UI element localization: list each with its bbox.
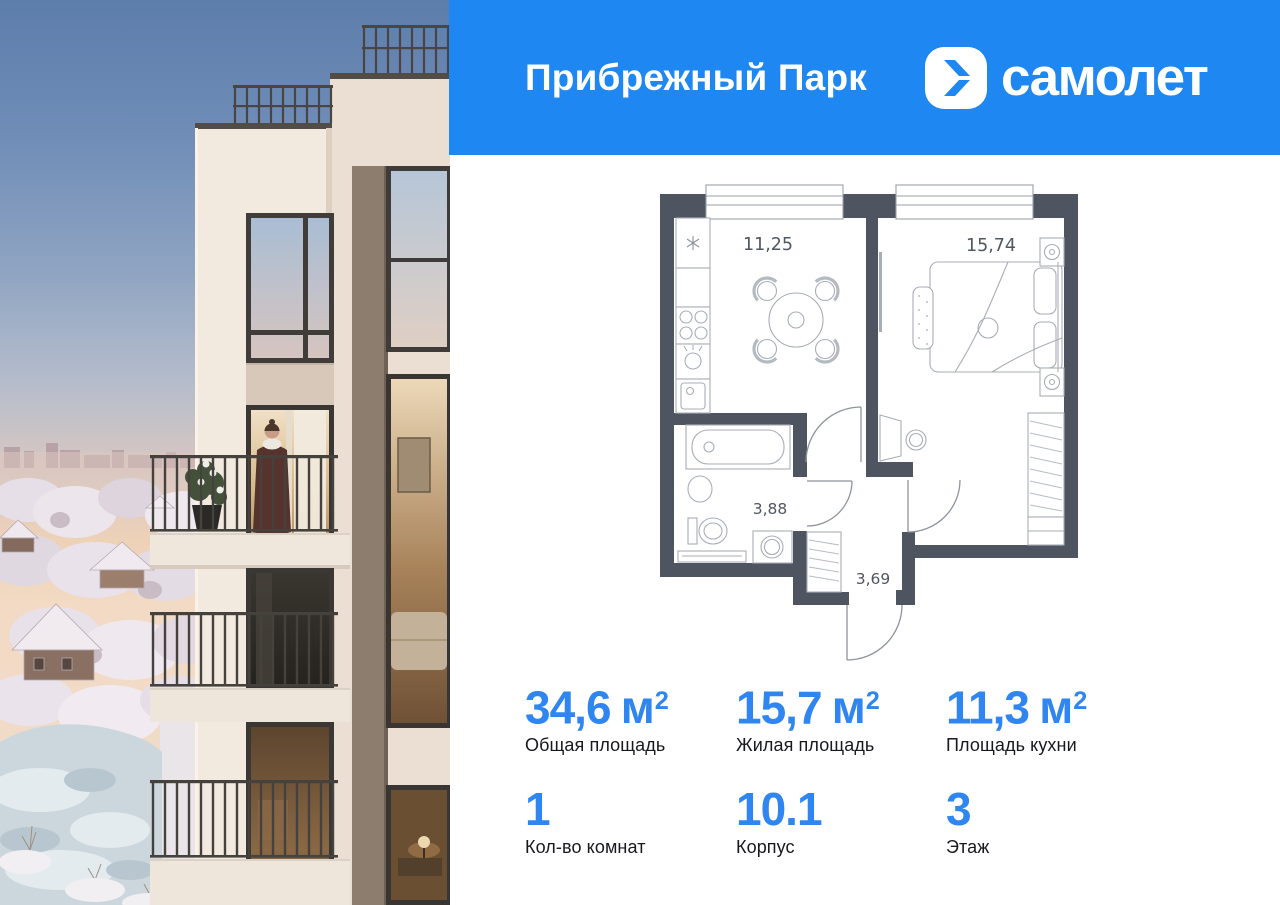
stat-living-area-label: Жилая площадь — [736, 735, 941, 756]
samolet-logo-icon — [925, 47, 987, 109]
stat-rooms-count-value: 1 — [525, 788, 730, 830]
stat-floor-label: Этаж — [946, 837, 1151, 858]
stat-total-area-value: 34,6 м2 — [525, 678, 730, 728]
white-scarf — [263, 439, 282, 450]
project-title: Прибрежный Парк — [525, 0, 867, 155]
chair — [758, 282, 777, 301]
building-facade — [150, 25, 450, 905]
bathroom-area-label: 3,88 — [753, 500, 788, 518]
stat-floor-value: 3 — [946, 788, 1151, 830]
window-desk-interior — [386, 785, 450, 905]
apartment-stats: 34,6 м2 Общая площадь 15,7 м2 Жилая площ… — [525, 670, 1145, 900]
stat-building-value: 10.1 — [736, 788, 941, 830]
stat-kitchen-area: 11,3 м2 Площадь кухни — [946, 678, 1151, 756]
dining-table — [769, 293, 823, 347]
nightstand — [1040, 238, 1064, 266]
stat-total-area-label: Общая площадь — [525, 735, 730, 756]
header-banner: Прибрежный Парк самолет — [449, 0, 1280, 155]
floor-plan-svg: 11,25 15,74 3,88 3,69 — [655, 183, 1087, 675]
roof-railing-far — [362, 25, 450, 28]
nightstand — [1040, 368, 1064, 396]
chair — [758, 340, 777, 359]
facade-panel — [352, 166, 388, 905]
window-living-room-interior — [386, 374, 450, 728]
roof-railing-near — [233, 85, 333, 88]
toilet — [688, 518, 697, 544]
stat-building: 10.1 Корпус — [736, 788, 941, 858]
bench — [913, 287, 933, 349]
samolet-logo: самолет — [925, 0, 1207, 155]
hallway-area-label: 3,69 — [856, 570, 891, 588]
brand-name: самолет — [1001, 51, 1207, 104]
stat-kitchen-area-value: 11,3 м2 — [946, 678, 1151, 728]
tv-console — [879, 252, 882, 332]
lamp — [418, 836, 430, 848]
winter-building-illustration — [0, 0, 450, 905]
window-sky-reflection — [246, 213, 334, 363]
chair — [816, 282, 835, 301]
pillow — [1034, 268, 1056, 314]
living-area-label: 15,74 — [966, 236, 1016, 256]
stat-rooms-count-label: Кол-во комнат — [525, 837, 730, 858]
wall-art — [398, 438, 430, 492]
floor-plan: 11,25 15,74 3,88 3,69 — [655, 183, 1087, 675]
chair — [816, 340, 835, 359]
stat-kitchen-area-label: Площадь кухни — [946, 735, 1151, 756]
project-photo — [0, 0, 450, 905]
window-sky-reflection — [386, 166, 450, 352]
stat-total-area: 34,6 м2 Общая площадь — [525, 678, 730, 756]
stat-building-label: Корпус — [736, 837, 941, 858]
dressing-console — [880, 415, 901, 461]
stat-floor: 3 Этаж — [946, 788, 1151, 858]
kitchen-area-label: 11,25 — [743, 235, 793, 255]
sofa — [391, 612, 447, 670]
stat-living-area: 15,7 м2 Жилая площадь — [736, 678, 941, 756]
kitchen-cabinet — [676, 268, 710, 307]
desk — [398, 858, 442, 876]
stat-living-area-value: 15,7 м2 — [736, 678, 941, 728]
wardrobe — [1028, 413, 1064, 517]
stat-rooms-count: 1 Кол-во комнат — [525, 788, 730, 858]
bath-sink — [688, 476, 712, 502]
